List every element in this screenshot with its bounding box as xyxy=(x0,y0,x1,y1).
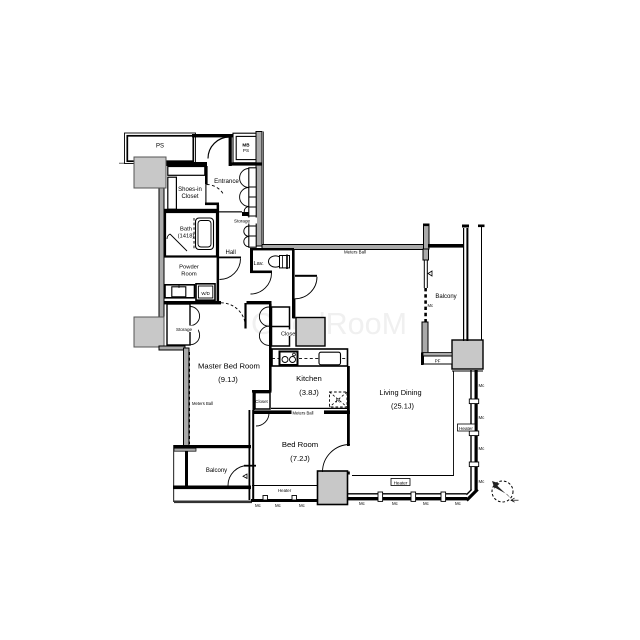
svg-text:Mc: Mc xyxy=(359,501,366,506)
svg-text:Bed Room: Bed Room xyxy=(282,440,318,449)
svg-text:Storage: Storage xyxy=(176,327,193,332)
svg-text:Bath: Bath xyxy=(180,227,192,233)
svg-text:R: R xyxy=(336,399,340,405)
svg-text:Balcony: Balcony xyxy=(435,294,456,300)
svg-text:MB: MB xyxy=(242,143,250,148)
svg-text:(9.1J): (9.1J) xyxy=(218,375,238,384)
svg-text:Mc: Mc xyxy=(255,503,262,508)
svg-text:PS: PS xyxy=(156,144,164,150)
svg-text:(7.2J): (7.2J) xyxy=(290,454,310,463)
svg-text:Lav.: Lav. xyxy=(254,261,265,267)
svg-text:Shoes-in: Shoes-in xyxy=(178,187,202,193)
svg-text:Mc: Mc xyxy=(428,303,434,308)
svg-text:(1418): (1418) xyxy=(178,233,195,239)
svg-text:Hall: Hall xyxy=(226,250,236,256)
svg-text:Storage: Storage xyxy=(234,219,251,224)
svg-text:Heater: Heater xyxy=(394,480,408,485)
svg-text:Entrance: Entrance xyxy=(214,178,239,185)
svg-text:Kitchen: Kitchen xyxy=(296,374,322,383)
svg-text:W/D: W/D xyxy=(201,291,210,296)
svg-text:Mc: Mc xyxy=(479,415,486,420)
svg-text:PS: PS xyxy=(243,148,249,153)
svg-text:Powder: Powder xyxy=(179,265,199,271)
svg-text:Living Dining: Living Dining xyxy=(379,388,421,397)
svg-text:Mc: Mc xyxy=(423,501,430,506)
svg-text:Closet: Closet xyxy=(281,331,297,337)
svg-text:(25.1J): (25.1J) xyxy=(391,402,414,411)
svg-text:Heater: Heater xyxy=(459,426,473,431)
svg-text:Mc: Mc xyxy=(479,446,486,451)
svg-text:Room: Room xyxy=(181,272,197,278)
svg-text:Meters Ball: Meters Ball xyxy=(344,250,366,255)
svg-text:Heater: Heater xyxy=(278,488,292,493)
svg-text:Meters Ball: Meters Ball xyxy=(293,410,314,415)
svg-text:(3.8J): (3.8J) xyxy=(299,388,319,397)
svg-text:Meters Ball: Meters Ball xyxy=(192,401,213,406)
svg-text:Mc: Mc xyxy=(275,503,282,508)
svg-text:Mc: Mc xyxy=(392,501,399,506)
svg-text:Mc: Mc xyxy=(299,503,306,508)
svg-text:Mc: Mc xyxy=(479,383,486,388)
svg-text:Mc: Mc xyxy=(479,479,486,484)
svg-text:Closet: Closet xyxy=(181,194,198,200)
svg-text:Closet: Closet xyxy=(255,399,268,404)
svg-text:Mc: Mc xyxy=(455,501,462,506)
svg-text:Master Bed Room: Master Bed Room xyxy=(198,362,260,371)
svg-text:PF: PF xyxy=(435,359,441,364)
svg-text:Balcony: Balcony xyxy=(206,468,227,474)
